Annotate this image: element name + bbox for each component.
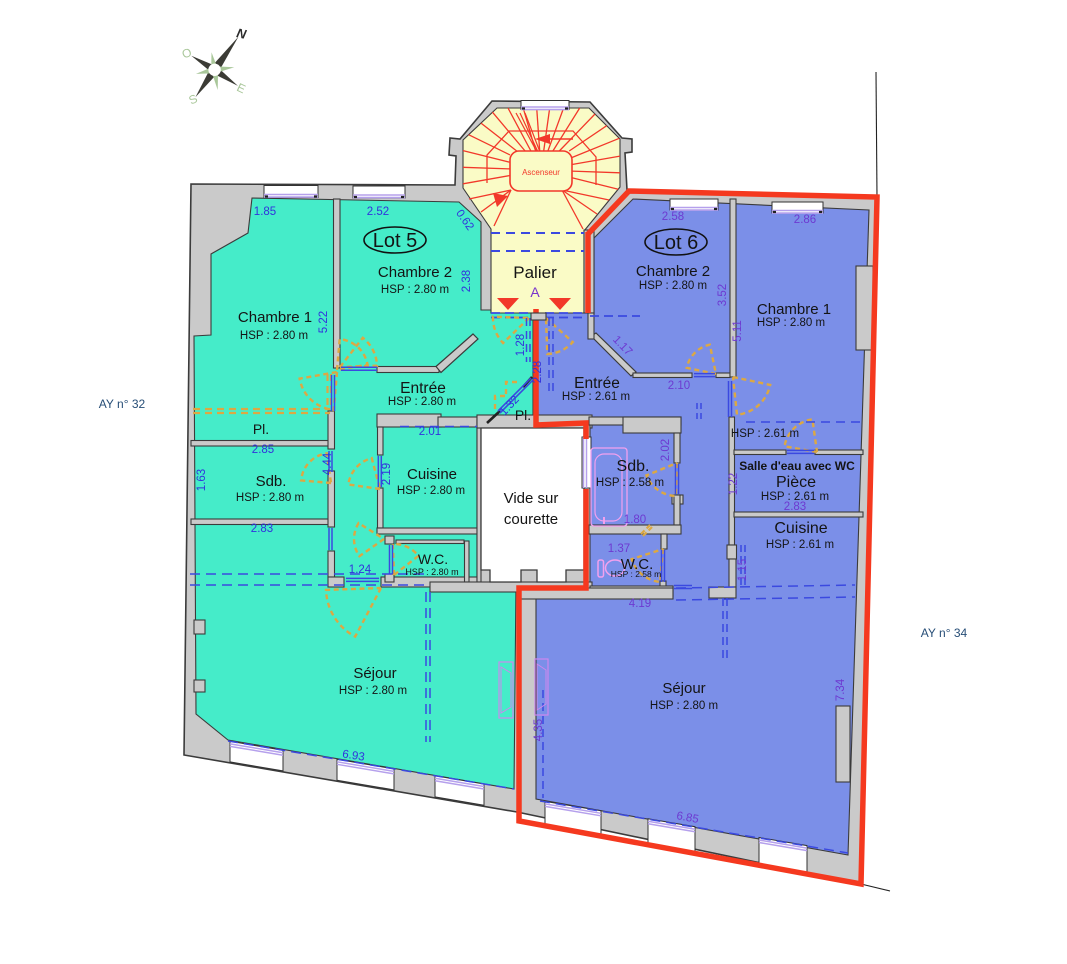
svg-text:Chambre 2: Chambre 2 <box>636 263 710 280</box>
svg-text:Entrée: Entrée <box>574 375 620 392</box>
svg-text:HSP : 2.80 m: HSP : 2.80 m <box>388 396 456 408</box>
svg-text:AY n° 32: AY n° 32 <box>99 397 146 411</box>
svg-text:A: A <box>530 284 540 300</box>
svg-text:2.58: 2.58 <box>662 211 684 223</box>
svg-text:HSP : 2.58 m: HSP : 2.58 m <box>596 477 664 489</box>
svg-text:2.01: 2.01 <box>419 426 441 438</box>
svg-text:HSP : 2.61 m: HSP : 2.61 m <box>731 428 799 440</box>
svg-text:3.52: 3.52 <box>717 284 729 306</box>
svg-text:7.34: 7.34 <box>835 678 847 701</box>
svg-text:AY n° 34: AY n° 34 <box>921 626 968 640</box>
svg-text:5.11: 5.11 <box>732 320 744 342</box>
svg-text:1.28: 1.28 <box>515 334 527 356</box>
svg-text:Sdb.: Sdb. <box>617 458 650 475</box>
svg-text:Séjour: Séjour <box>353 665 396 682</box>
svg-text:HSP : 2.58 m: HSP : 2.58 m <box>611 569 661 579</box>
svg-text:2.83: 2.83 <box>251 523 273 535</box>
svg-text:W.C.: W.C. <box>418 551 448 567</box>
svg-text:Pl.: Pl. <box>253 421 269 437</box>
svg-text:1.24: 1.24 <box>349 564 372 576</box>
svg-text:Pièce: Pièce <box>776 474 816 491</box>
svg-text:HSP : 2.80 m: HSP : 2.80 m <box>405 567 458 577</box>
svg-text:1.85: 1.85 <box>254 206 276 218</box>
svg-text:2.86: 2.86 <box>794 214 816 226</box>
svg-text:Chambre 1: Chambre 1 <box>757 301 831 318</box>
svg-text:1.22: 1.22 <box>728 473 740 495</box>
svg-text:2.85: 2.85 <box>252 444 274 456</box>
svg-text:2.83: 2.83 <box>784 501 806 513</box>
svg-text:Palier: Palier <box>513 263 557 282</box>
svg-text:1.80: 1.80 <box>624 514 646 526</box>
svg-text:HSP : 2.61 m: HSP : 2.61 m <box>562 391 630 403</box>
svg-text:Chambre 1: Chambre 1 <box>238 309 312 326</box>
svg-text:HSP : 2.80 m: HSP : 2.80 m <box>757 317 825 329</box>
svg-text:Chambre 2: Chambre 2 <box>378 264 452 281</box>
svg-text:HSP : 2.80 m: HSP : 2.80 m <box>339 685 407 697</box>
svg-text:Vide sur: Vide sur <box>504 490 559 507</box>
svg-text:Entrée: Entrée <box>400 380 446 397</box>
svg-text:HSP : 2.80 m: HSP : 2.80 m <box>381 284 449 296</box>
svg-text:4.35: 4.35 <box>533 719 545 741</box>
svg-text:N: N <box>235 25 248 42</box>
svg-text:Ascenseur: Ascenseur <box>522 168 560 177</box>
svg-text:Salle d'eau avec WC: Salle d'eau avec WC <box>739 459 855 473</box>
svg-text:Lot 5: Lot 5 <box>373 230 417 252</box>
svg-text:Sdb.: Sdb. <box>256 473 287 490</box>
svg-text:Pl.: Pl. <box>515 407 531 423</box>
svg-text:4.44: 4.44 <box>322 452 334 475</box>
svg-text:2.38: 2.38 <box>461 270 473 292</box>
svg-text:2.10: 2.10 <box>668 380 690 392</box>
svg-text:Cuisine: Cuisine <box>774 520 827 537</box>
svg-text:HSP : 2.80 m: HSP : 2.80 m <box>639 280 707 292</box>
svg-text:HSP : 2.80 m: HSP : 2.80 m <box>397 485 465 497</box>
svg-text:2.02: 2.02 <box>660 439 672 461</box>
svg-text:2.28: 2.28 <box>532 361 544 383</box>
svg-text:1.63: 1.63 <box>196 469 208 491</box>
svg-text:Cuisine: Cuisine <box>407 466 457 483</box>
svg-text:E: E <box>235 80 248 96</box>
svg-text:HSP : 2.80 m: HSP : 2.80 m <box>240 330 308 342</box>
svg-text:O: O <box>180 45 194 61</box>
svg-text:2.19: 2.19 <box>381 463 393 485</box>
svg-text:HSP : 2.61 m: HSP : 2.61 m <box>766 539 834 551</box>
svg-text:Lot 6: Lot 6 <box>654 232 698 254</box>
svg-text:5.22: 5.22 <box>318 311 330 333</box>
svg-text:1.15: 1.15 <box>737 559 749 581</box>
svg-text:1.37: 1.37 <box>608 543 630 555</box>
svg-text:HSP : 2.80 m: HSP : 2.80 m <box>650 700 718 712</box>
svg-text:4.19: 4.19 <box>629 598 651 610</box>
svg-text:Séjour: Séjour <box>662 680 705 697</box>
svg-text:HSP : 2.80 m: HSP : 2.80 m <box>236 492 304 504</box>
svg-text:courette: courette <box>504 511 558 528</box>
svg-text:2.52: 2.52 <box>367 206 389 218</box>
